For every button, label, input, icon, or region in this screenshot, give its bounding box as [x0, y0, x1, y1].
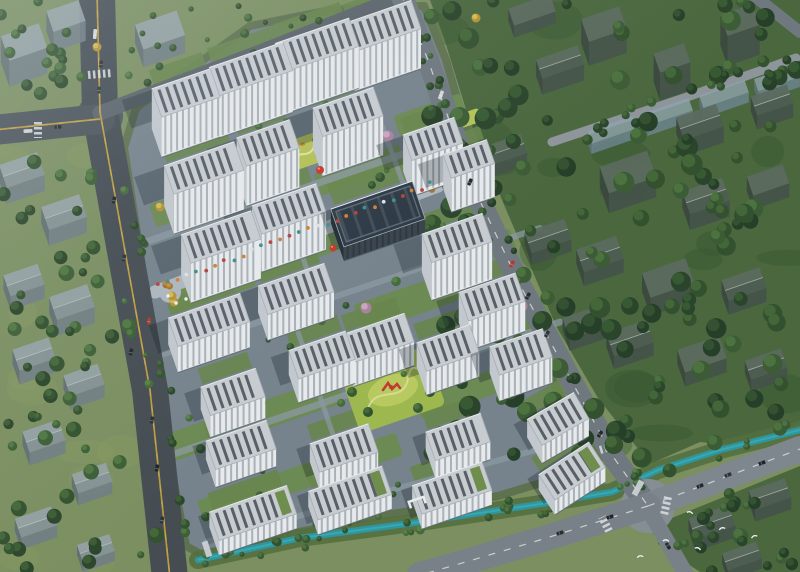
render-canvas [0, 0, 800, 572]
aerial-masterplan-render [0, 0, 800, 572]
atmosphere-haze [0, 0, 800, 572]
haze-overlay [0, 0, 800, 572]
